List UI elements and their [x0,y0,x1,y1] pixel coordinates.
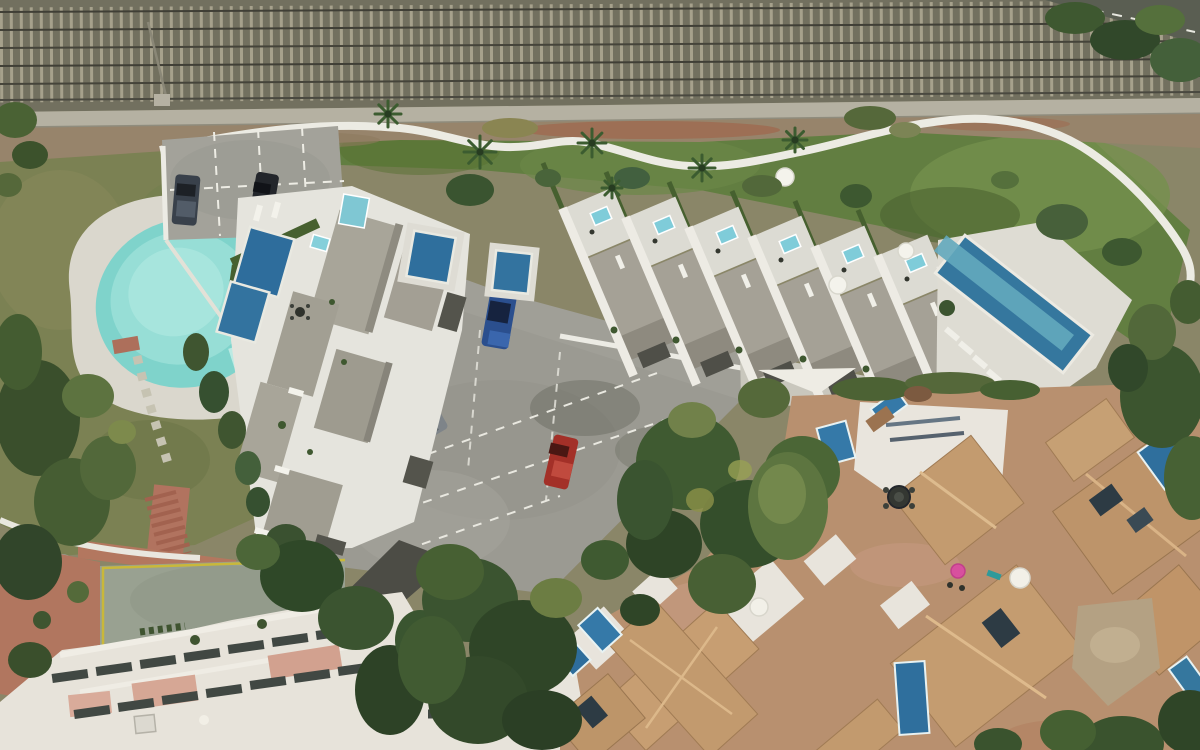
plunge-pool [339,194,370,228]
patio-chair [290,304,294,308]
tree [617,460,673,540]
tree-light [686,488,714,512]
hedge-bush [246,487,270,517]
car-roof [176,200,196,218]
palm-tree [578,129,606,157]
bush [33,611,51,629]
hedge-bush [199,371,229,413]
palm-tree [783,128,807,152]
patio-chair [290,316,294,320]
dining-chair [909,487,915,493]
bush [614,167,650,189]
private-pool [492,250,532,294]
dry-bush [482,118,538,138]
tree-big-light-inner [758,464,806,524]
parasol-white [829,276,847,294]
old-pool [895,661,930,735]
terrace-plant [278,421,286,429]
palm-tree [375,101,401,127]
tree [738,378,790,418]
parasol-white [898,243,914,259]
bush [742,175,782,197]
tree [318,586,394,650]
tree [502,690,582,750]
roof-plant [257,619,267,629]
aerial-development-photo [0,0,1200,750]
tree [1135,5,1185,35]
tree [688,554,756,614]
bush [840,184,872,208]
hedge-row [832,377,912,401]
private-pool [406,231,455,284]
bush [535,169,561,187]
palm-tree [602,178,622,198]
terrace-plant [341,359,347,365]
terrace-furniture [842,268,847,273]
bush [1102,238,1142,266]
roof-plant [863,366,870,373]
hedge-bush [183,333,209,371]
tree [12,141,48,169]
terrace-plant [329,299,335,305]
roof-plant [673,337,680,344]
tree [1108,344,1148,392]
car-windshield [176,183,196,197]
hedge-bush [218,411,246,449]
bush [991,171,1019,189]
parasol-white [750,598,768,616]
parked-car-gray [171,174,200,226]
terrace-furniture [905,277,910,282]
terrace-furniture [716,249,721,254]
terrace-furniture [779,258,784,263]
terrace-furniture [947,582,953,588]
dining-chair [883,487,889,493]
roof-plant [190,635,200,645]
dining-chair [909,503,915,509]
roof-plant [800,356,807,363]
bush-red [904,386,932,402]
boundary-wall-west [163,146,166,240]
hedge-bush [235,451,261,485]
tree [80,436,136,500]
roof-plant [736,347,743,354]
rock-texture [1090,627,1140,663]
tree [8,642,52,678]
mast-base [154,94,170,106]
tree [581,540,629,580]
bush [67,581,89,603]
patio-table [295,307,305,317]
tree-light [668,402,716,438]
terrace-furniture [590,230,595,235]
terrace-plant [307,449,313,455]
car-blue-windows [487,300,511,323]
tree-shadow [530,380,640,436]
tree [236,534,280,570]
deck-plant [939,300,955,316]
tree-light [530,578,582,618]
dining-chair [883,503,889,509]
palm-tree [689,155,715,181]
bush-yellow [108,420,136,444]
aerial-scene [0,0,1200,750]
patio-chair [306,316,310,320]
roof-object-white [199,715,209,725]
hedge-row [980,380,1040,400]
tree-light [728,460,752,480]
ac-unit [134,715,156,734]
dirt-patch [520,121,780,139]
bush [889,122,921,138]
table-center [894,492,904,502]
tree [398,616,466,704]
tree [416,544,484,600]
palm-tree [464,136,496,168]
bush [844,106,896,130]
patio-chair [306,304,310,308]
roof-plant [611,327,618,334]
bush [1036,204,1088,240]
parasol-pink [951,564,965,578]
terrace-furniture [959,585,965,591]
tree [62,374,114,418]
parasol-white [1010,568,1030,588]
bush [446,174,494,206]
tree [620,594,660,626]
terrace-furniture [653,239,658,244]
